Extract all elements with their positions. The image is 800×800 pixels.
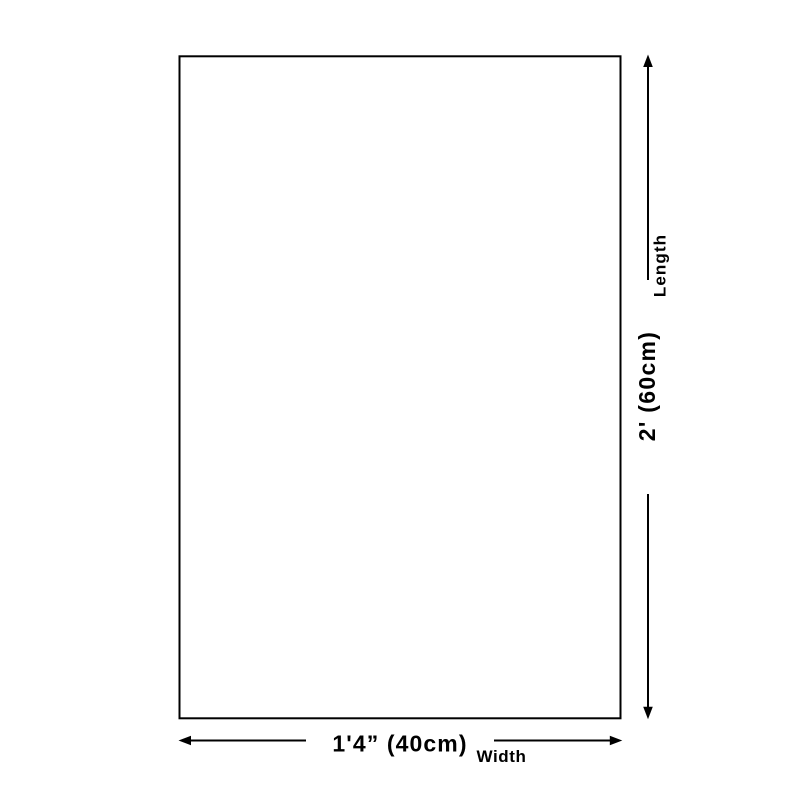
- svg-text:Length: Length: [651, 234, 670, 297]
- svg-text:Width: Width: [476, 747, 526, 766]
- svg-text:2' (60cm): 2' (60cm): [634, 331, 660, 442]
- svg-text:1'4” (40cm): 1'4” (40cm): [332, 731, 467, 757]
